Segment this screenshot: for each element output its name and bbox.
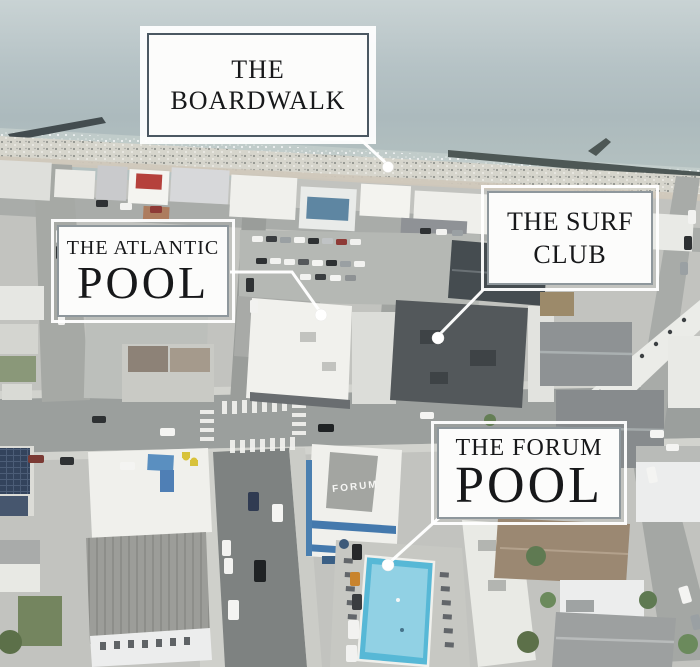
pool-umbrella [339,539,349,549]
marker-dot-boardwalk [383,162,394,173]
bottom-left-block [0,446,212,667]
atlantic-main-roof [246,298,352,404]
atlantic-hotel [234,296,396,409]
callout-boardwalk-line2: BOARDWALK [170,87,345,114]
solar-roof [0,448,30,494]
callout-atlantic-pool: THE ATLANTIC POOL [57,225,229,317]
callout-boardwalk-line1: THE [231,56,285,83]
red-roof-sign [136,173,163,189]
marker-dot-forum [382,559,394,571]
callout-surf-line2: CLUB [533,241,606,268]
marker-dot-atlantic [315,309,327,321]
lawn [0,356,36,382]
blue-mural [306,197,349,221]
callout-forum-pool: THE FORUM POOL [437,427,621,519]
marker-dot-surf [432,332,444,344]
callout-atlantic-line2: POOL [77,261,209,305]
callout-boardwalk: THE BOARDWALK [147,33,369,137]
metal-roof-building [86,532,210,644]
callout-surf-line1: THE SURF [507,208,633,235]
atlantic-east-wing [352,312,396,404]
callout-surf-club: THE SURF CLUB [487,191,653,285]
blue-tarp [147,454,174,471]
callout-forum-line2: POOL [455,462,603,510]
aerial-photo: FORUM [0,0,700,667]
lawn [18,596,62,646]
callout-atlantic-line1: THE ATLANTIC [67,238,220,259]
